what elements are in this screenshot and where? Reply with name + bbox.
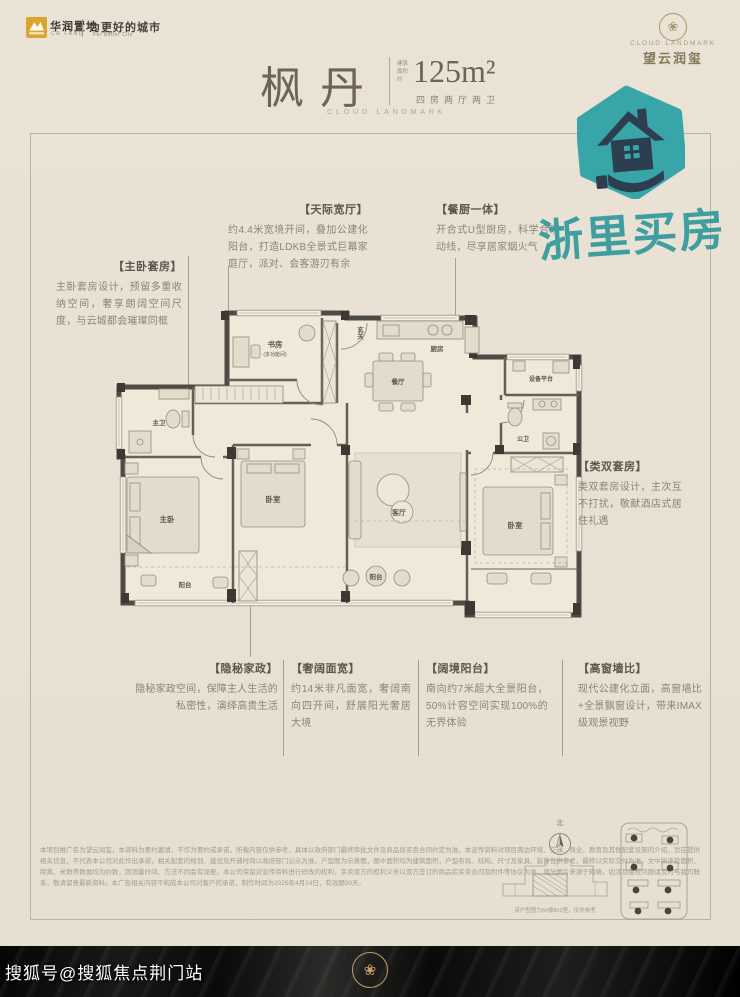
callout-body: 南向约7米超大全景阳台，50%计容空间实现100%的无界体验 bbox=[426, 681, 548, 733]
title-divider bbox=[389, 57, 390, 105]
room-equipment: 设备平台 bbox=[529, 375, 553, 383]
project-name-cn: 望云润玺 bbox=[624, 48, 722, 67]
room-balcony2: 阳台 bbox=[370, 572, 384, 581]
callout-title: 【高窗墙比】 bbox=[578, 660, 702, 676]
compass-label: 北 bbox=[557, 819, 564, 827]
unit-name-en: CLOUD LANDMARK bbox=[327, 107, 446, 116]
callout-wide-facade: 【奢阔面宽】 约14米非凡面宽，奢阔南向四开间，舒展阳光奢居大境 bbox=[291, 660, 411, 733]
callout-title: 【类双套房】 bbox=[578, 458, 682, 474]
callout-body: 主卧套房设计，预留多重收纳空间，奢享朗阔空间尺度，与云城都会璀璨同框 bbox=[56, 279, 182, 331]
band-emblem-icon: ❀ bbox=[352, 952, 388, 988]
callout-body: 隐秘家政空间，保障主人生活的私密性，演绎高贵生活 bbox=[132, 681, 278, 715]
callout-divider bbox=[283, 660, 284, 756]
room-master-bath: 主卫 bbox=[153, 418, 167, 427]
room-dining: 餐厅 bbox=[391, 377, 406, 386]
room-study: 书房 bbox=[268, 339, 283, 349]
room-bed2: 卧室 bbox=[266, 494, 281, 504]
room-kitchen: 厨房 bbox=[431, 344, 445, 353]
cr-land-logo-icon bbox=[26, 17, 47, 38]
callout-body: 现代公建化立面，高窗墙比+全景飘窗设计，带来IMAX级观景视野 bbox=[578, 681, 702, 733]
room-living: 客厅 bbox=[391, 508, 406, 517]
logo-glyph bbox=[26, 17, 47, 38]
house-hand-badge-icon bbox=[577, 85, 685, 199]
callout-divider bbox=[562, 660, 563, 756]
stamp-text: 浙里买房 bbox=[536, 191, 740, 270]
area-note: 建筑面积约 bbox=[397, 61, 412, 85]
callout-title: 【天际宽厅】 bbox=[228, 201, 368, 217]
area-value: 125m² bbox=[413, 53, 495, 90]
callout-master-suite: 【主卧套房】 主卧套房设计，预留多重收纳空间，奢享朗阔空间尺度，与云城都会璀璨同… bbox=[56, 258, 182, 331]
callout-housework: 【隐秘家政】 隐秘家政空间，保障主人生活的私密性，演绎高贵生活 bbox=[132, 660, 278, 715]
brand-name-en: CR LAND bbox=[51, 31, 84, 37]
room-study-sub: (多功能间) bbox=[263, 351, 287, 358]
callout-divider bbox=[418, 660, 419, 756]
callout-title: 【奢阔面宽】 bbox=[291, 660, 411, 676]
callout-body: 约4.4米宽境开间，叠加公建化阳台，打造LDKB全景式巨幕家庭厅，派对、会客游刃… bbox=[228, 222, 368, 274]
keyplan-diagram bbox=[495, 852, 615, 904]
callout-window-wall: 【高窗墙比】 现代公建化立面，高窗墙比+全景飘窗设计，带来IMAX级观景视野 bbox=[578, 660, 702, 733]
room-guest-bath: 公卫 bbox=[517, 436, 529, 443]
siteplan-diagram bbox=[620, 822, 688, 920]
brand-divider bbox=[82, 19, 83, 37]
callout-body: 约14米非凡面宽，奢阔南向四开间，舒展阳光奢居大境 bbox=[291, 681, 411, 733]
poster-page: 华润置地 CR LAND 为更好的城市 For Better City 枫丹 建… bbox=[0, 0, 740, 997]
watermark-text: 搜狐号@搜狐焦点荆门站 bbox=[5, 959, 203, 984]
project-emblem-icon: ❀ bbox=[659, 13, 687, 41]
unit-layout: 四房两厅两卫 bbox=[416, 93, 500, 106]
callout-title: 【主卧套房】 bbox=[56, 258, 182, 274]
room-master-bed: 主卧 bbox=[160, 514, 175, 524]
project-name-en: CLOUD LANDMARK bbox=[624, 40, 722, 47]
floor-plan: 玄关 书房 (多功能间) 厨房 餐厅 设备平台 公卫 主卫 主卧 卧室 客厅 卧… bbox=[115, 285, 593, 645]
room-bed3: 卧室 bbox=[508, 520, 523, 530]
callout-title: 【阔境阳台】 bbox=[426, 660, 548, 676]
keyplan-caption: 该户型图为6#楼802室，仅作参考 bbox=[492, 906, 618, 914]
callout-balcony: 【阔境阳台】 南向约7米超大全景阳台，50%计容空间实现100%的无界体验 bbox=[426, 660, 548, 733]
room-balcony: 阳台 bbox=[179, 580, 193, 589]
callout-twin-suite: 【类双套房】 类双套房设计，主次互不打扰，敬献酒店式居住礼遇 bbox=[578, 458, 682, 531]
callout-sky-hall: 【天际宽厅】 约4.4米宽境开间，叠加公建化阳台，打造LDKB全景式巨幕家庭厅，… bbox=[228, 201, 368, 274]
callout-body: 类双套房设计，主次互不打扰，敬献酒店式居住礼遇 bbox=[578, 479, 682, 531]
callout-title: 【隐秘家政】 bbox=[132, 660, 278, 676]
brand-slogan-en: For Better City bbox=[93, 32, 133, 38]
